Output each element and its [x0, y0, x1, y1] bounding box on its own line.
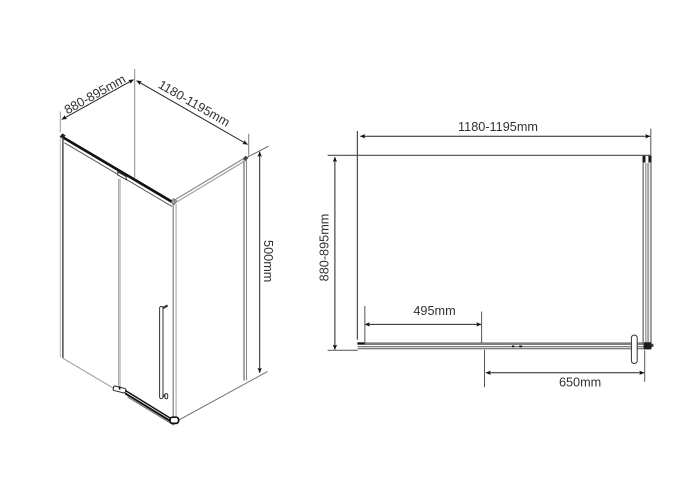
- svg-text:495mm: 495mm: [413, 304, 455, 318]
- svg-text:1180-1195mm: 1180-1195mm: [458, 120, 538, 134]
- svg-text:880-895mm: 880-895mm: [62, 72, 128, 117]
- svg-text:500mm: 500mm: [261, 240, 275, 282]
- svg-text:650mm: 650mm: [559, 376, 601, 390]
- svg-text:1180-1195mm: 1180-1195mm: [156, 78, 232, 130]
- svg-text:880-895mm: 880-895mm: [318, 214, 332, 282]
